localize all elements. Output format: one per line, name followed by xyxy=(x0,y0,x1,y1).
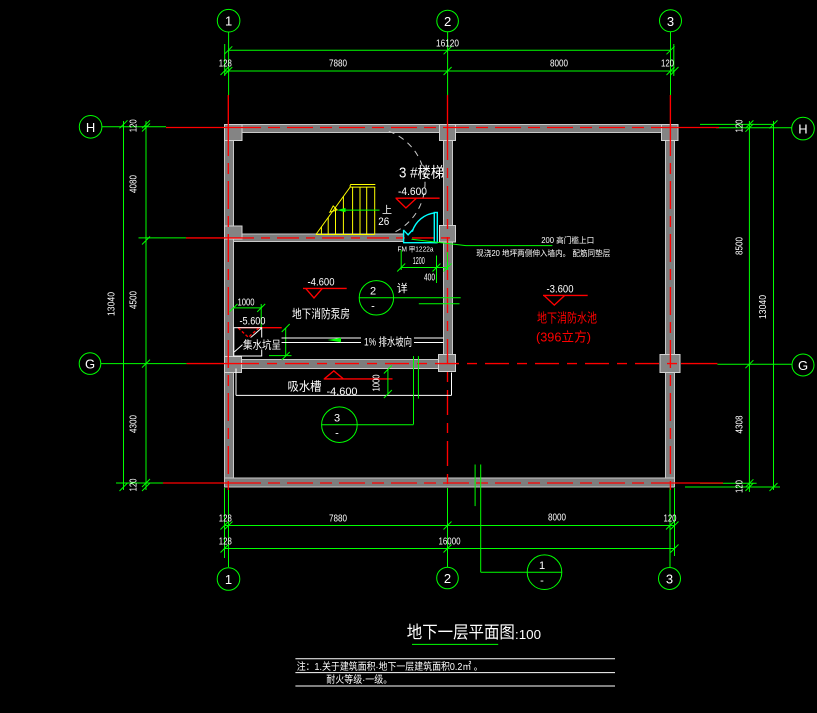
svg-text:吸水槽: 吸水槽 xyxy=(288,379,322,393)
svg-text:1% 排水坡向: 1% 排水坡向 xyxy=(364,335,412,349)
svg-text:现浇20 地坪两侧伸入墙内。 配筋同垫层: 现浇20 地坪两侧伸入墙内。 配筋同垫层 xyxy=(476,248,610,258)
svg-text::100: :100 xyxy=(515,627,541,642)
svg-text:-: - xyxy=(371,301,375,313)
svg-text:-4.600: -4.600 xyxy=(398,186,427,198)
svg-text:3: 3 xyxy=(334,413,340,425)
svg-text:-: - xyxy=(540,575,544,587)
svg-text:-4.600: -4.600 xyxy=(308,276,335,288)
svg-text:16000: 16000 xyxy=(439,537,461,548)
svg-text:2: 2 xyxy=(444,14,451,29)
svg-text:4500: 4500 xyxy=(128,291,139,309)
svg-text:3: 3 xyxy=(667,14,674,29)
svg-text:注：1.关于建筑面积·地下一层建筑面积0.2㎡ 。: 注：1.关于建筑面积·地下一层建筑面积0.2㎡ 。 xyxy=(297,660,483,673)
svg-text:128: 128 xyxy=(219,59,232,70)
svg-text:120: 120 xyxy=(128,478,139,491)
svg-text:1000: 1000 xyxy=(238,297,255,308)
svg-text:G: G xyxy=(798,358,808,373)
svg-text:2: 2 xyxy=(444,571,451,586)
svg-text:详: 详 xyxy=(397,281,408,295)
svg-text:8000: 8000 xyxy=(550,59,568,70)
svg-text:地下一层平面图: 地下一层平面图 xyxy=(407,623,515,642)
svg-text:地下消防水池: 地下消防水池 xyxy=(537,311,597,326)
svg-text:8000: 8000 xyxy=(548,513,566,524)
svg-text:-5.600: -5.600 xyxy=(240,316,266,328)
svg-text:1000: 1000 xyxy=(372,374,383,391)
svg-text:26: 26 xyxy=(378,216,389,228)
svg-text:8500: 8500 xyxy=(735,237,746,255)
svg-text:耐火等级·一级。: 耐火等级·一级。 xyxy=(326,673,392,686)
svg-text:16120: 16120 xyxy=(436,39,459,50)
svg-text:7880: 7880 xyxy=(329,514,347,525)
svg-text:120: 120 xyxy=(661,59,674,70)
svg-text:13040: 13040 xyxy=(107,292,118,316)
svg-text:3: 3 xyxy=(666,572,673,587)
svg-text:4308: 4308 xyxy=(735,415,746,433)
svg-text:1: 1 xyxy=(225,14,232,29)
svg-text:200 高门槛上口: 200 高门槛上口 xyxy=(541,235,594,245)
svg-text:1: 1 xyxy=(225,572,232,587)
svg-text:H: H xyxy=(798,122,807,137)
svg-text:H: H xyxy=(86,120,95,135)
svg-text:-3.600: -3.600 xyxy=(547,284,574,296)
svg-text:1200: 1200 xyxy=(413,256,425,267)
svg-text:7880: 7880 xyxy=(329,59,347,70)
svg-text:3 #楼梯: 3 #楼梯 xyxy=(399,165,444,182)
svg-text:1: 1 xyxy=(539,560,545,572)
svg-text:120: 120 xyxy=(128,119,139,132)
svg-text:G: G xyxy=(85,357,95,372)
svg-text:120: 120 xyxy=(664,514,677,525)
svg-text:400: 400 xyxy=(424,273,435,284)
svg-text:120: 120 xyxy=(735,480,746,493)
svg-text:-4.600: -4.600 xyxy=(327,386,358,398)
svg-text:2: 2 xyxy=(370,286,376,298)
svg-text:128: 128 xyxy=(219,537,232,548)
svg-text:(396立方): (396立方) xyxy=(536,330,591,345)
svg-text:地下消防泵房: 地下消防泵房 xyxy=(292,306,350,321)
svg-text:128: 128 xyxy=(219,514,232,525)
svg-text:FM 甲1222a: FM 甲1222a xyxy=(398,246,434,254)
svg-text:-: - xyxy=(335,428,339,440)
svg-text:4080: 4080 xyxy=(128,175,139,193)
svg-text:120: 120 xyxy=(735,119,746,132)
svg-text:13040: 13040 xyxy=(758,295,769,319)
svg-text:集水坑呈: 集水坑呈 xyxy=(243,338,281,352)
svg-text:4300: 4300 xyxy=(128,415,139,433)
svg-text:上: 上 xyxy=(382,204,392,216)
